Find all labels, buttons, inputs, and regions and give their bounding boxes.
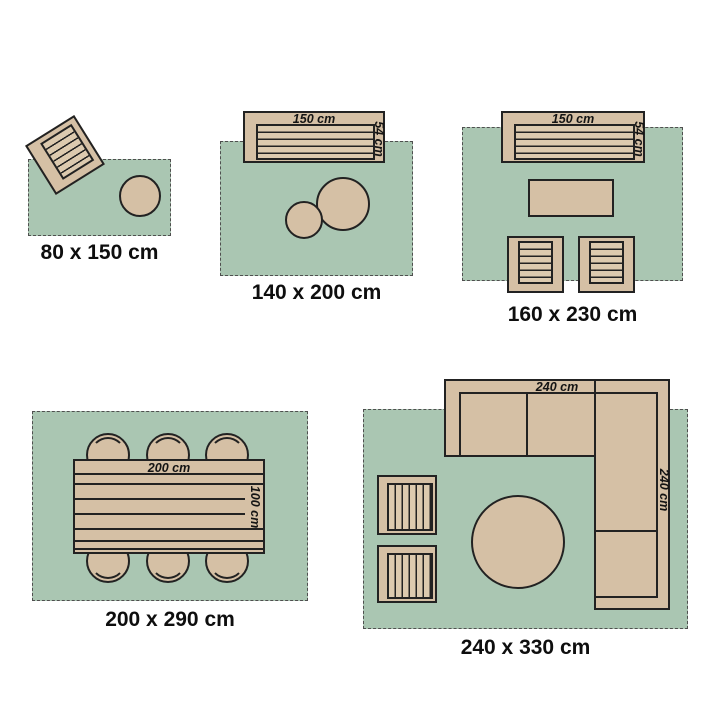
size-caption-80x150: 80 x 150 cm: [18, 241, 181, 264]
table-plank-line: [75, 473, 263, 475]
table-plank-line: [75, 548, 263, 550]
dining-table-icon: 200 cm 100 cm: [73, 459, 265, 554]
armchair-icon: [507, 236, 564, 293]
seat-divider: [596, 530, 656, 532]
sofa-armrest-edge: [459, 392, 461, 456]
armchair-seat-slats: [387, 483, 433, 531]
sofa-seat-slats: [256, 124, 375, 160]
sofa-icon: 150 cm 54 cm: [243, 111, 385, 163]
corner-sofa-width-label: 240 cm: [444, 380, 670, 393]
size-caption-140x200: 140 x 200 cm: [220, 281, 413, 304]
table-depth-label: 100 cm: [248, 486, 262, 528]
table-plank-line: [75, 513, 245, 515]
round-table-icon: [471, 495, 565, 589]
size-caption-240x330: 240 x 330 cm: [363, 636, 688, 659]
rug-size-guide: 80 x 150 cm 150 cm 54 cm 140 x 200 cm 15…: [0, 0, 720, 720]
armchair-icon: [377, 545, 437, 603]
armchair-seat-slats: [589, 241, 624, 284]
side-table-icon: [119, 175, 161, 217]
armchair-seat-slats: [387, 553, 433, 599]
armchair-seat-slats: [40, 124, 94, 180]
corner-sofa-depth-label: 240 cm: [657, 469, 671, 511]
size-caption-160x230: 160 x 230 cm: [462, 303, 683, 326]
coffee-table-icon: [528, 179, 614, 217]
sofa-inner-bottom-edge: [596, 596, 656, 598]
table-plank-line: [75, 498, 245, 500]
coffee-table-small-icon: [285, 201, 323, 239]
table-plank-line: [75, 528, 263, 530]
armchair-icon: [377, 475, 437, 535]
table-plank-line: [75, 540, 263, 542]
table-plank-line: [75, 483, 263, 485]
coffee-table-large-icon: [316, 177, 370, 231]
sofa-depth-label: 54 cm: [632, 121, 646, 156]
sofa-depth-label: 54 cm: [372, 121, 386, 156]
sofa-seat-slats: [514, 124, 635, 160]
seat-divider: [526, 392, 528, 456]
sofa-icon: 150 cm 54 cm: [501, 111, 645, 163]
armchair-icon: [578, 236, 635, 293]
size-caption-200x290: 200 x 290 cm: [32, 608, 308, 631]
armchair-seat-slats: [518, 241, 553, 284]
